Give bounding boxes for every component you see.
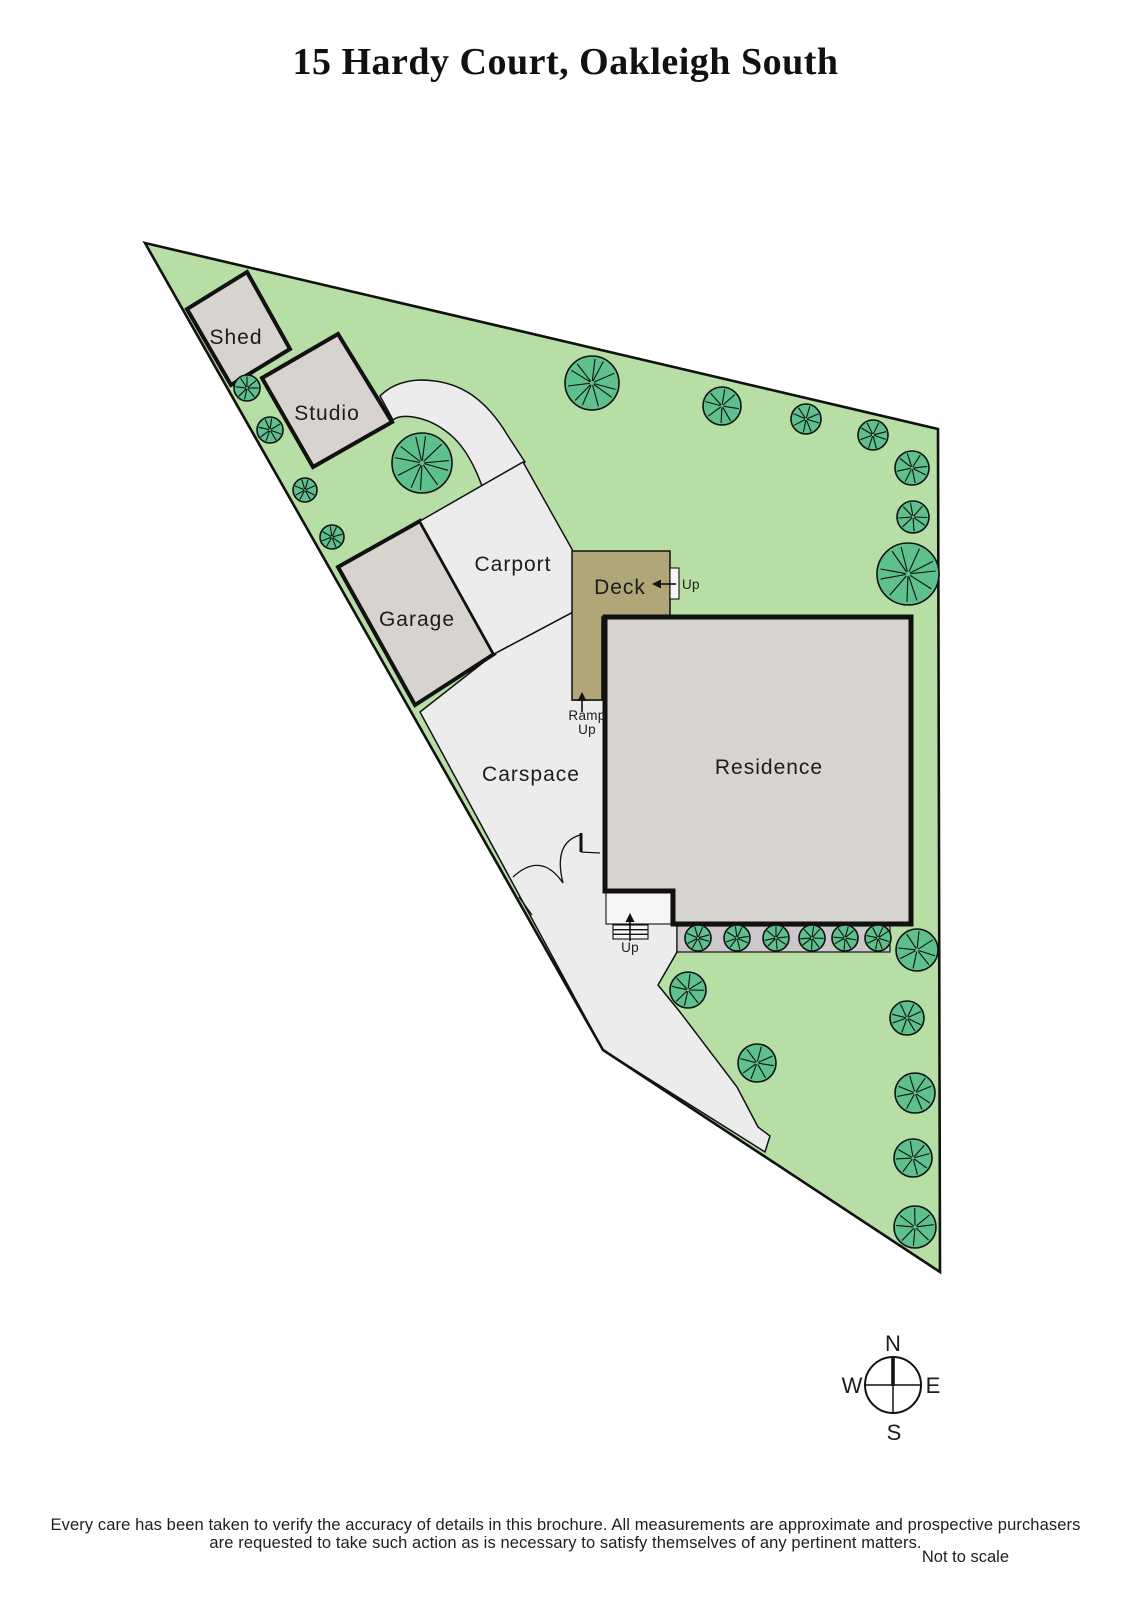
bush-icon [320,525,344,549]
tree-icon [877,543,939,605]
tree-icon [890,1001,924,1035]
disclaimer-line1: Every care has been taken to verify the … [0,1516,1131,1534]
residence-label: Residence [715,756,823,779]
compass: N E S W [842,1331,941,1445]
compass-w: W [842,1373,863,1398]
tree-icon [894,1206,936,1248]
tree-icon [858,420,888,450]
bush-icon [257,417,283,443]
site-plan: Shed Studio Garage Carport Deck Residenc… [0,0,1131,1600]
ramp-label-line1: Ramp [568,708,605,723]
porch [606,892,671,924]
bush-icon [293,478,317,502]
tree-icon [738,1044,776,1082]
tree-icon [897,501,929,533]
tree-icon [392,433,452,493]
bush-icon [685,925,711,951]
garage-label: Garage [379,608,455,631]
compass-n: N [885,1331,901,1356]
studio-label: Studio [294,402,360,425]
tree-icon [895,1073,935,1113]
bush-icon [799,925,825,951]
bush-icon [724,925,750,951]
deck-up-label: Up [682,577,700,592]
shed-label: Shed [209,326,262,349]
compass-s: S [887,1420,902,1445]
carspace-label: Carspace [482,763,580,786]
tree-icon [703,387,741,425]
bush-icon [865,925,891,951]
deck-label: Deck [594,576,646,599]
tree-icon [895,451,929,485]
disclaimer: Every care has been taken to verify the … [0,1516,1131,1552]
bush-icon [832,925,858,951]
tree-icon [896,929,938,971]
tree-icon [791,404,821,434]
bush-icon [763,925,789,951]
ramp-label-line2: Up [578,722,596,737]
compass-e: E [926,1373,941,1398]
tree-icon [565,356,619,410]
carport-label: Carport [474,553,551,576]
tree-icon [670,972,706,1008]
porch-up-label: Up [621,940,639,955]
bush-icon [234,375,260,401]
tree-icon [894,1139,932,1177]
scale-note: Not to scale [922,1548,1009,1567]
